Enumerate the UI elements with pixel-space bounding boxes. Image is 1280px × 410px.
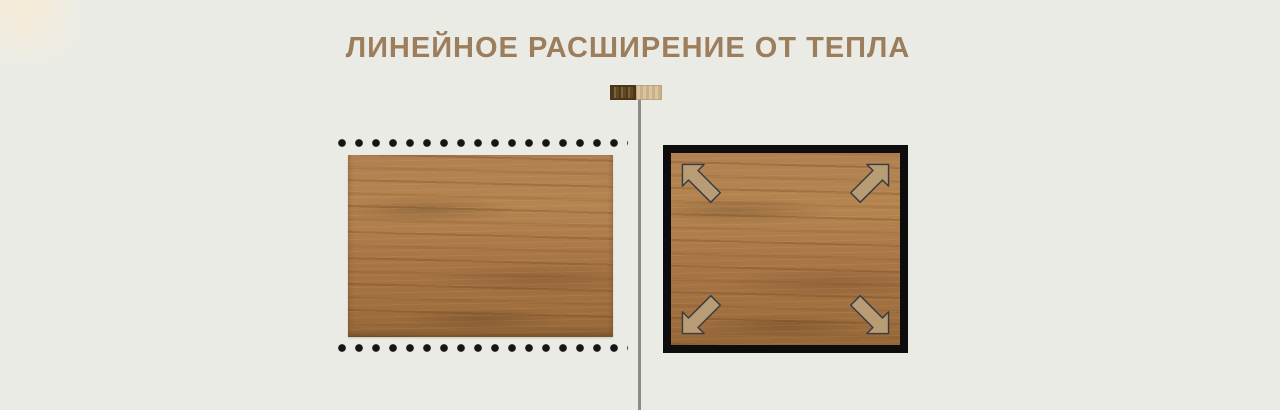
dark-wood-swatch-icon [610,85,636,100]
expansion-arrow-bottom-left-icon [667,285,731,349]
wood-comparison-legend [610,85,662,100]
wood-panel-clamped-frame [663,145,908,353]
dots-row-top-icon [338,139,628,147]
light-wood-swatch-icon [636,85,662,100]
page-title: ЛИНЕЙНОЕ РАСШИРЕНИЕ ОТ ТЕПЛА [0,32,1256,65]
infographic-canvas: ЛИНЕЙНОЕ РАСШИРЕНИЕ ОТ ТЕПЛА [0,0,1280,410]
expansion-arrow-top-left-icon [667,149,731,213]
expansion-arrow-bottom-right-icon [840,285,904,349]
vertical-divider [638,100,641,410]
wood-panel-unclamped [348,155,613,337]
expansion-arrow-top-right-icon [840,149,904,213]
dots-row-bottom-icon [338,344,628,352]
